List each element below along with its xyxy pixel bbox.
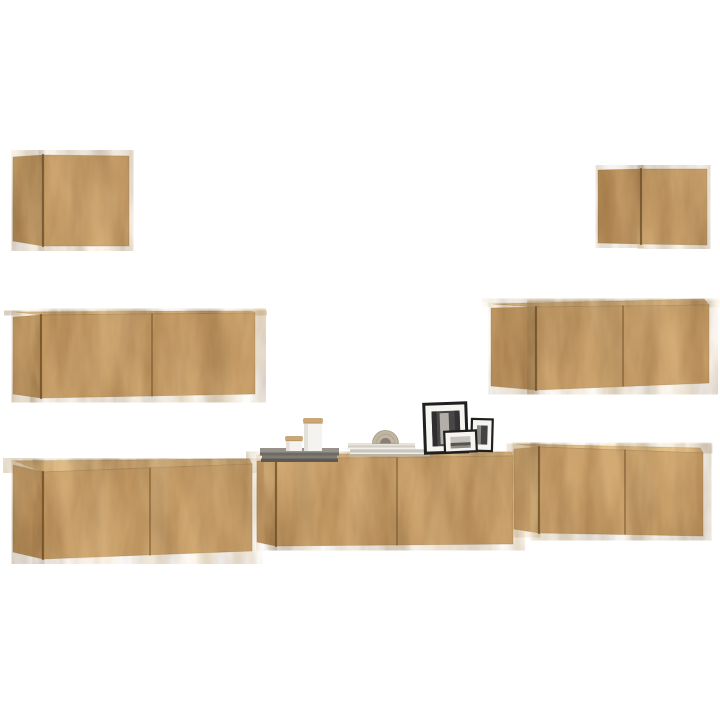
storage-jar-large — [303, 418, 323, 451]
wall-cabinet-top-left — [13, 155, 129, 246]
wall-cabinet-mid-right — [491, 299, 709, 390]
book-slab — [261, 459, 338, 463]
cabinet-front-panel — [539, 447, 703, 536]
cabinet-front-panel — [276, 456, 513, 546]
jar-part — [286, 441, 290, 451]
cabinet-front-panel — [641, 169, 707, 245]
tv-cabinet-bottom-left — [13, 459, 252, 559]
cabinet-side-panel — [13, 465, 43, 559]
book-slab — [350, 449, 430, 452]
tv-cabinet-bottom-right — [514, 444, 703, 536]
book-slab — [348, 446, 415, 448]
wall-cabinet-top-right — [598, 169, 707, 245]
cabinet-side-panel — [13, 155, 43, 246]
cabinet-side-panel — [257, 459, 276, 546]
jar-part — [285, 436, 303, 441]
wall-cabinet-mid-left — [13, 311, 255, 398]
book-slab — [262, 456, 337, 459]
cabinet-front-panel — [43, 464, 252, 559]
jar-part — [304, 424, 308, 451]
book-slab — [347, 448, 416, 450]
cabinet-side-panel — [598, 169, 641, 244]
cabinet-side-panel — [13, 315, 41, 398]
cabinet-front-panel — [43, 155, 129, 246]
cabinet-front-panel — [41, 313, 255, 398]
cabinet-side-panel — [514, 447, 539, 533]
cabinet-side-panel — [491, 307, 536, 390]
storage-jar-small — [285, 436, 303, 451]
scene-svg — [0, 0, 720, 720]
product-photo — [0, 0, 720, 720]
jar-part — [303, 418, 323, 423]
book-slab — [349, 454, 430, 456]
picture-frame-small — [443, 429, 478, 453]
book-slab — [350, 453, 430, 455]
tv-cabinet-bottom-middle — [257, 452, 513, 546]
book-slab — [260, 453, 339, 456]
